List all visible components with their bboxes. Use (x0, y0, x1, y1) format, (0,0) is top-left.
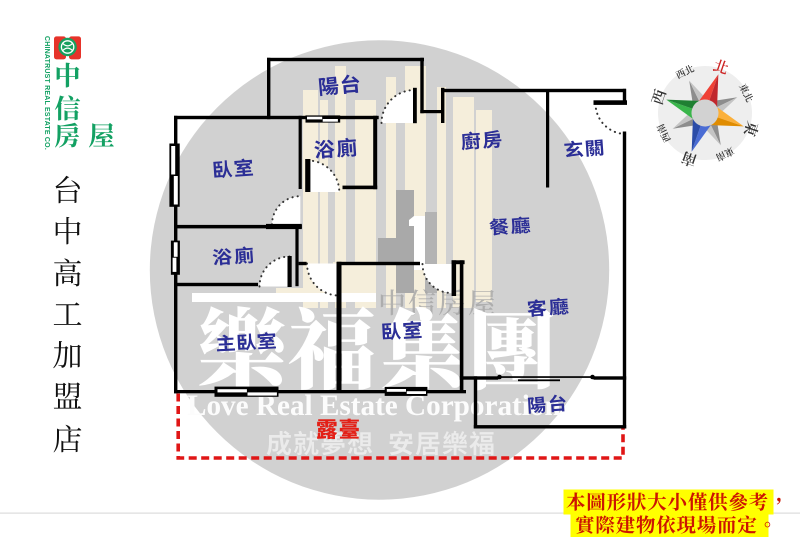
svg-text:CHINATRUST REAL ESTATE CO.: CHINATRUST REAL ESTATE CO. (43, 36, 50, 150)
